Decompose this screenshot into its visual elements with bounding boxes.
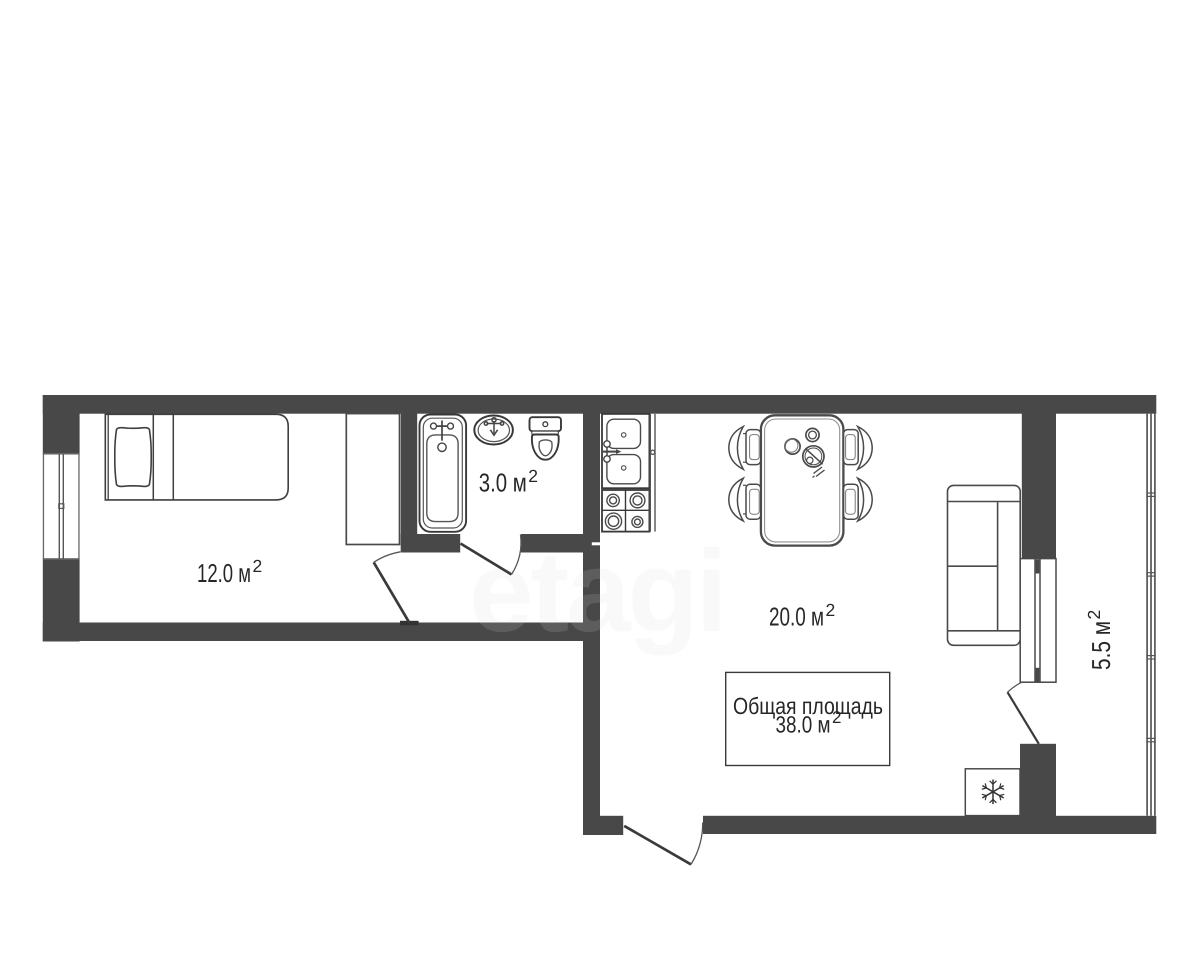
svg-text:3.0 м: 3.0 м — [479, 468, 527, 498]
svg-text:38.0 м: 38.0 м — [776, 712, 831, 738]
svg-text:2: 2 — [1084, 610, 1104, 620]
svg-text:2: 2 — [253, 556, 263, 576]
svg-text:12.0 м: 12.0 м — [197, 558, 251, 588]
svg-text:2: 2 — [528, 466, 538, 486]
svg-text:20.0 м: 20.0 м — [769, 602, 824, 632]
svg-text:2: 2 — [832, 708, 841, 727]
svg-text:5.5 м: 5.5 м — [1086, 621, 1116, 670]
svg-text:2: 2 — [826, 600, 836, 620]
